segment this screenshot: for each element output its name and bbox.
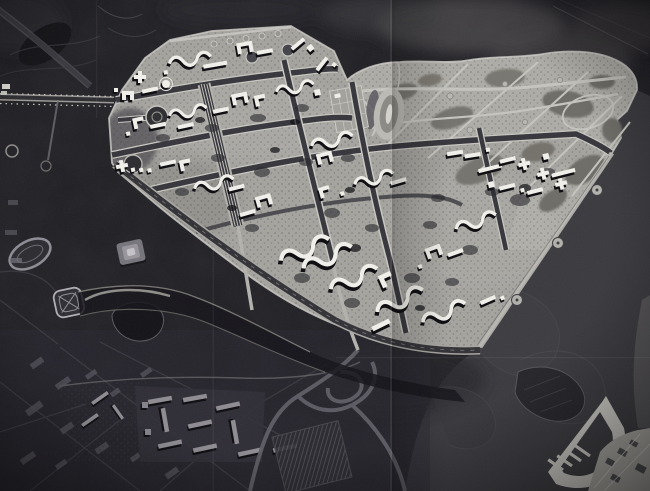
masterplan-svg <box>0 0 650 491</box>
vignette <box>0 0 650 491</box>
masterplan-photo <box>0 0 650 491</box>
